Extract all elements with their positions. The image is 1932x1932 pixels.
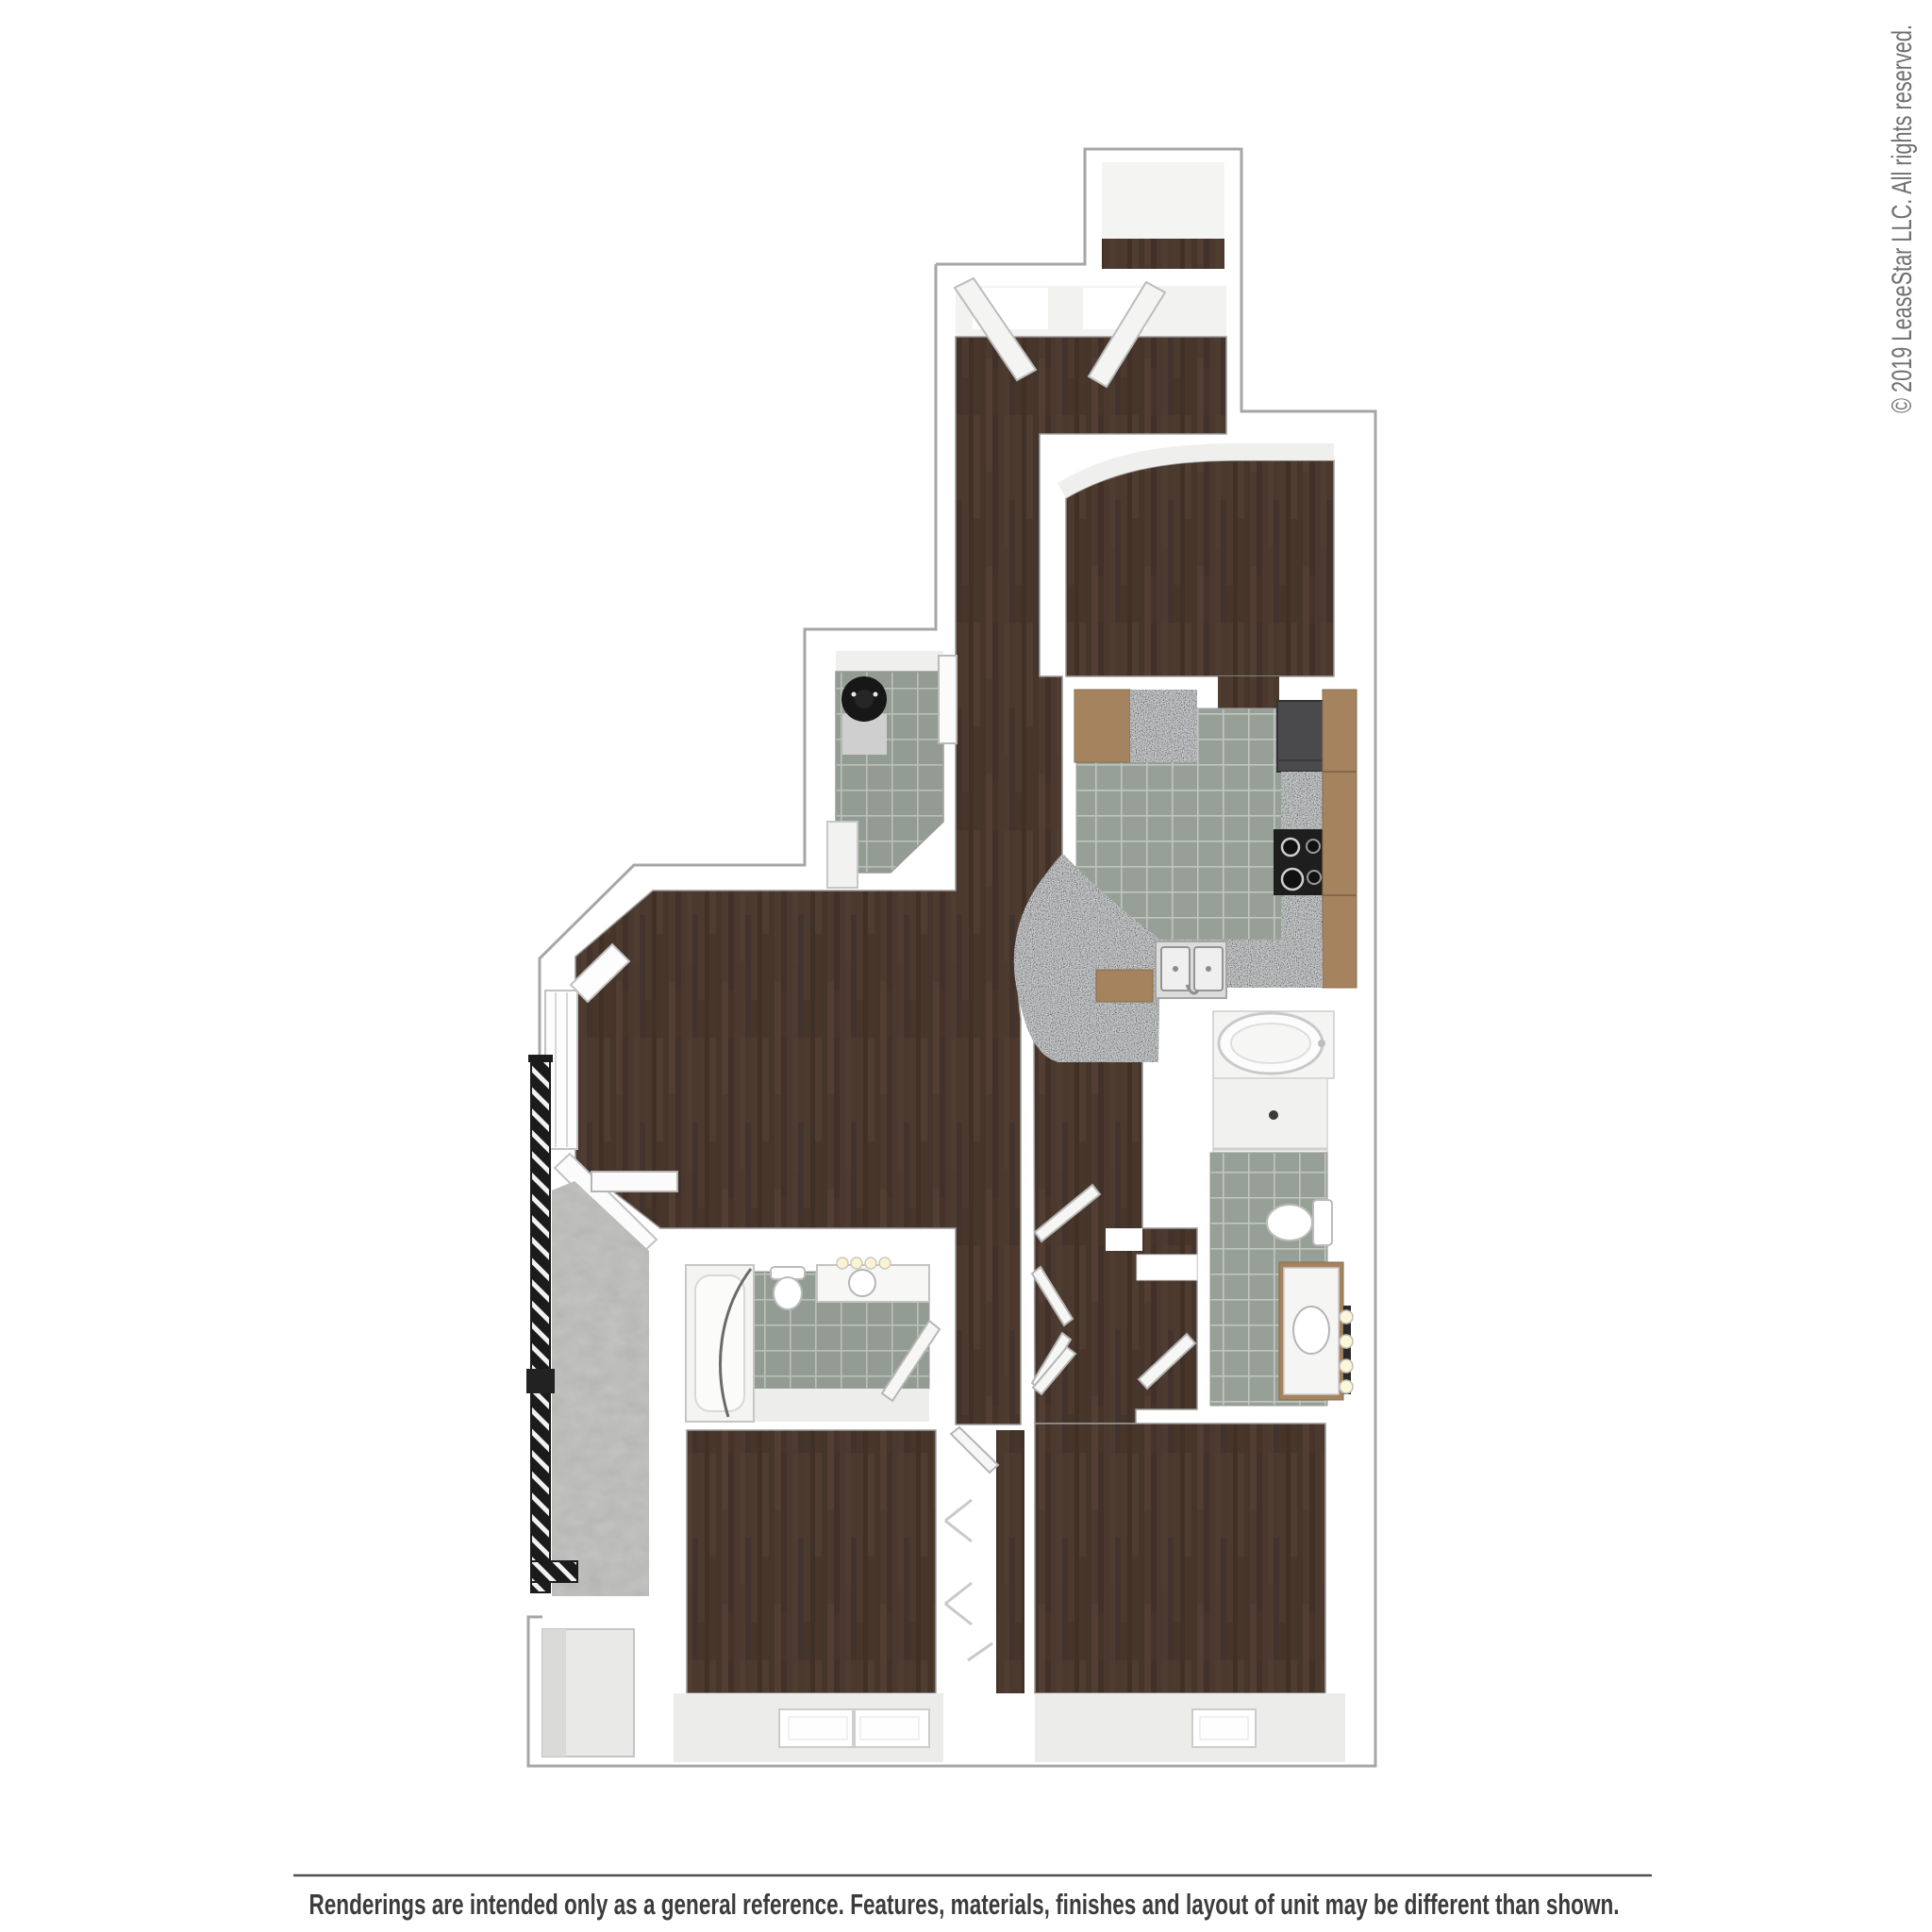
svg-text:© 2019 LeaseStar LLC. All righ: © 2019 LeaseStar LLC. All rights reserve… — [1887, 25, 1918, 413]
svg-text:Renderings are intended only a: Renderings are intended only as a genera… — [309, 1888, 1620, 1921]
